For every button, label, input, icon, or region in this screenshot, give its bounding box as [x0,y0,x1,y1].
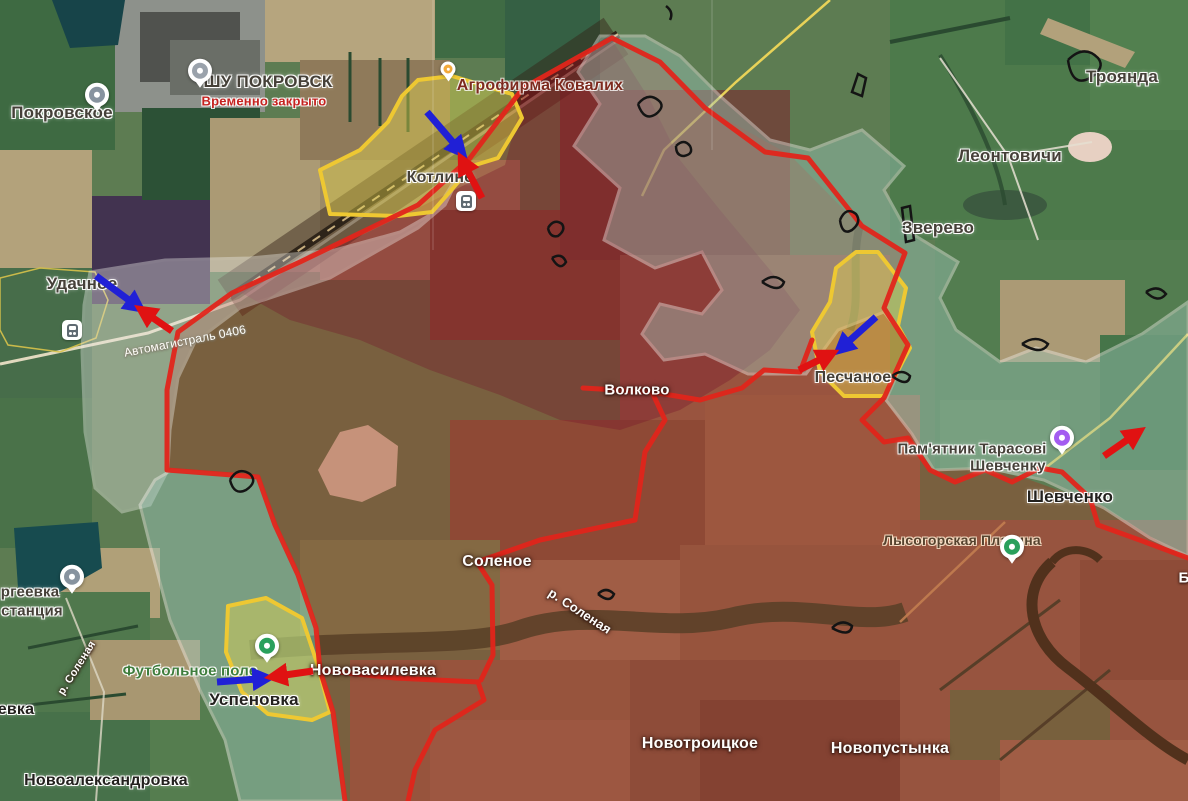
map-label-леонтовичи: Леонтовичи [958,146,1062,166]
map-label-пам'ятник-тарасові: Пам'ятник Тарасові [898,441,1047,458]
pokrovskoe-pin[interactable] [85,83,109,117]
map-label-троянда: Троянда [1086,67,1158,87]
train-glyph [461,195,472,208]
train-glyph [67,324,78,337]
udachnoe-station-icon[interactable] [62,320,82,340]
pin-tail [262,656,272,668]
lysogorka-pin[interactable] [1000,535,1024,569]
sergeevka-pin[interactable] [60,565,84,599]
pin-tail [92,105,102,117]
map-label-нововасилевка: Нововасилевка [310,662,436,680]
map-label-р-соленая: р. Соленая [56,639,99,697]
map-label-новоалександровка: Новоалександровка [24,772,188,790]
map-annotation-layer: ПокровскоеШУ ПОКРОВСКВременно закрытоАгр… [0,0,1188,801]
map-label-временно-закрыто: Временно закрыто [202,94,327,109]
pamyatnik-pin[interactable] [1050,426,1074,460]
map-label-автомагистраль-0406: Автомагистраль 0406 [123,322,247,359]
map-label-успеновка: Успеновка [209,690,299,710]
map-label-удачное: Удачное [47,274,118,294]
pin-tail [443,75,453,87]
map-label-футбольное-поле: Футбольное поле [123,663,258,680]
map-label-ргеевка: ргеевка [1,584,60,601]
map-label-шевченко: Шевченко [1027,487,1113,507]
map-label-станция: станция [1,603,63,620]
map-label-зверево: Зверево [902,218,974,238]
situation-map[interactable]: ПокровскоеШУ ПОКРОВСКВременно закрытоАгр… [0,0,1188,801]
pin-tail [1057,448,1067,460]
pin-tail [195,81,205,93]
map-label-песчаное: Песчаное [815,369,892,387]
football-field-pin[interactable] [255,634,279,668]
agrofirma-pin[interactable] [441,62,456,87]
map-label-волково: Волково [604,382,669,399]
map-label-новопустынка: Новопустынка [831,740,949,758]
map-label-шевченку: Шевченку [970,458,1046,475]
map-label-р-соленая: р. Соленая [546,585,615,637]
map-label-котлине: Котлине [407,169,474,187]
kotline-station-icon[interactable] [456,191,476,211]
map-label-б: Б [1179,570,1188,587]
shu-pokrovsk-pin[interactable] [188,59,212,93]
map-label-агрофирма-ковалих: Агрофирма Ковалих [457,77,624,95]
pin-tail [67,587,77,599]
pin-tail [1007,557,1017,569]
map-label-шу-покровск: ШУ ПОКРОВСК [203,72,332,92]
map-label-новотроицкое: Новотроицкое [642,735,758,753]
map-label-соленое: Соленое [462,553,532,571]
map-label-евка: евка [0,701,34,719]
